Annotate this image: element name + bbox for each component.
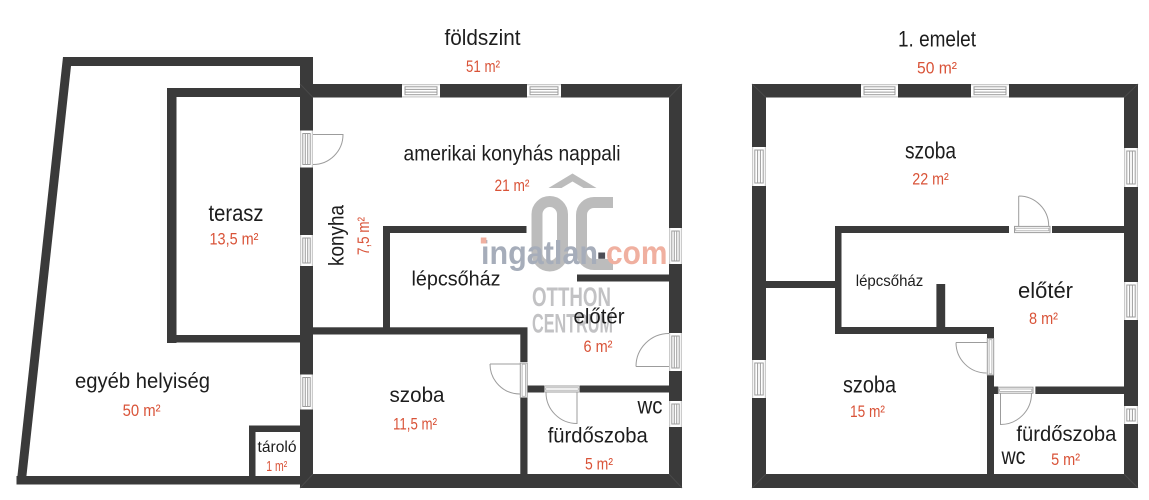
svg-text:wc: wc (637, 393, 663, 419)
svg-text:előtér: előtér (1018, 278, 1073, 303)
svg-text:50 m²: 50 m² (917, 60, 957, 78)
svg-text:1 m²: 1 m² (266, 459, 287, 475)
svg-text:11,5 m²: 11,5 m² (393, 416, 437, 434)
svg-text:szoba: szoba (905, 138, 956, 164)
svg-text:51 m²: 51 m² (466, 58, 500, 76)
svg-text:13,5 m²: 13,5 m² (210, 231, 259, 249)
svg-text:lépcsőház: lépcsőház (412, 269, 501, 291)
svg-text:terasz: terasz (209, 200, 264, 226)
svg-text:22 m²: 22 m² (912, 171, 949, 189)
svg-text:szoba: szoba (843, 372, 896, 398)
svg-text:fürdőszoba: fürdőszoba (548, 425, 648, 448)
svg-text:egyéb helyiség: egyéb helyiség (75, 370, 210, 393)
svg-text:földszint: földszint (445, 25, 521, 50)
svg-text:com: com (606, 234, 668, 271)
svg-text:előtér: előtér (574, 306, 625, 329)
svg-text:lépcsőház: lépcsőház (856, 273, 924, 290)
svg-text:5 m²: 5 m² (585, 456, 613, 474)
svg-text:7,5 m²: 7,5 m² (355, 217, 373, 255)
svg-text:ingatlan: ingatlan (481, 234, 598, 271)
svg-text:6 m²: 6 m² (584, 338, 613, 356)
svg-text:15 m²: 15 m² (850, 403, 885, 421)
svg-text:1. emelet: 1. emelet (898, 27, 976, 52)
svg-text:21 m²: 21 m² (495, 177, 530, 195)
svg-text:50 m²: 50 m² (123, 401, 161, 420)
svg-text:8 m²: 8 m² (1029, 310, 1058, 328)
svg-text:wc: wc (1001, 443, 1026, 469)
svg-text:5 m²: 5 m² (1051, 451, 1080, 469)
svg-text:tároló: tároló (258, 439, 297, 456)
svg-text:amerikai konyhás nappali: amerikai konyhás nappali (404, 143, 621, 166)
svg-text:konyha: konyha (326, 205, 349, 266)
svg-text:szoba: szoba (390, 384, 445, 407)
svg-text:fürdőszoba: fürdőszoba (1016, 423, 1116, 446)
